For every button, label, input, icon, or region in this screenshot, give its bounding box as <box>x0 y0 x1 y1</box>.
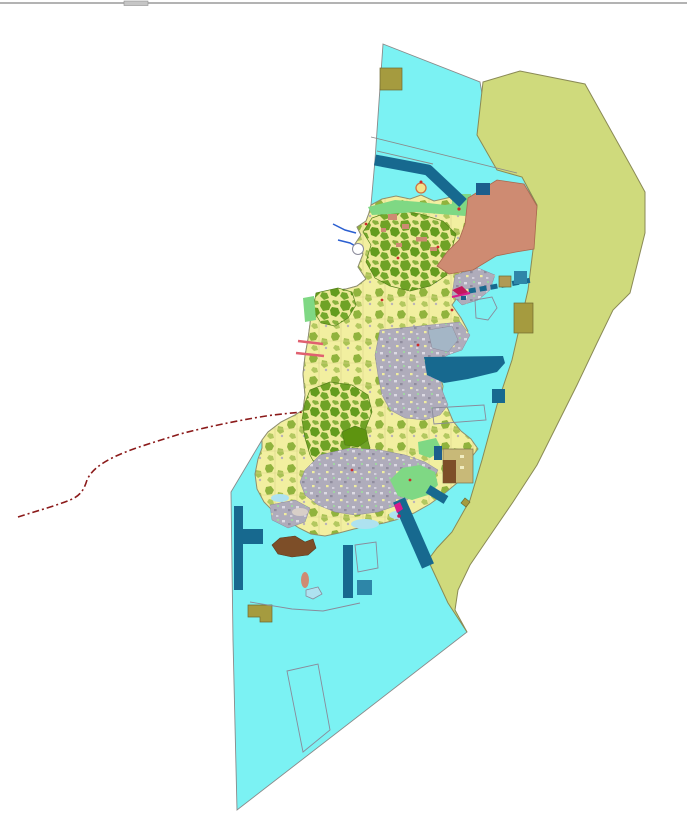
teal-square-offshore <box>514 271 527 284</box>
teal-square-south <box>357 580 372 595</box>
navy-strip-compound <box>434 446 442 460</box>
landuse-map-page <box>0 0 687 821</box>
port-bar-south <box>343 545 353 598</box>
navy-rect-north <box>476 183 490 195</box>
green-west-strip <box>303 296 316 322</box>
top-rule <box>0 1 687 6</box>
landuse-map-canvas[interactable] <box>0 0 687 821</box>
streams <box>333 224 357 247</box>
tan-square-offshore <box>499 276 511 287</box>
port-square-east <box>492 389 505 403</box>
facility-rect-east[interactable] <box>514 303 533 333</box>
facility-compound-east[interactable] <box>443 449 473 483</box>
white-circle-marker <box>353 244 364 255</box>
salmon-islet <box>301 572 309 588</box>
facility-square-top[interactable] <box>380 68 402 90</box>
